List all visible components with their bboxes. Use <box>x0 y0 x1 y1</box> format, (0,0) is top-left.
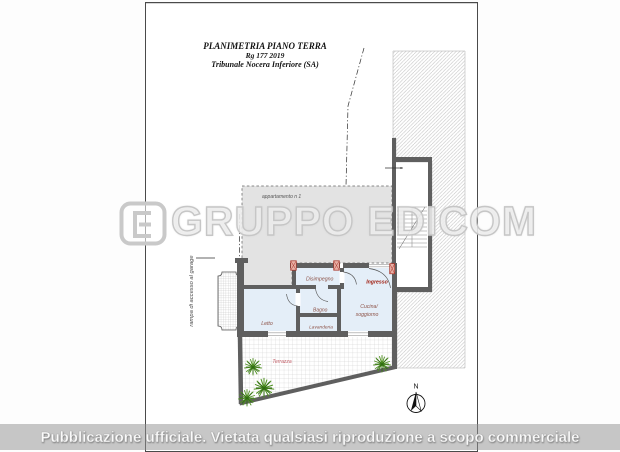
room-label-cucina-line1: Cucina/ <box>360 304 378 310</box>
ramp-structure <box>218 272 240 330</box>
title-block: PLANIMETRIA PIANO TERRA Rg 177 2019 Trib… <box>145 41 385 69</box>
room-label-terrazza: Terrazza <box>272 359 291 365</box>
terrace <box>240 337 397 405</box>
room-label-letto: Letto <box>261 321 273 327</box>
ramp-label: rampa di accesso al garage <box>189 255 195 327</box>
title-line-1: PLANIMETRIA PIANO TERRA <box>145 41 385 51</box>
staircase <box>397 207 427 249</box>
overhang-label: appartamento n 1 <box>262 194 301 200</box>
title-line-3: Tribunale Nocera Inferiore (SA) <box>145 60 385 69</box>
room-label-disimpegno: Disimpegno <box>306 277 334 283</box>
footer-banner: Pubblicazione ufficiale. Vietata qualsia… <box>0 424 620 450</box>
compass-north-label: N <box>413 384 418 391</box>
room-label-cucina-line2: soggiorno <box>356 312 379 318</box>
room-label-bagno: Bagno <box>313 308 328 314</box>
room-label-ingresso: Ingresso <box>366 280 388 286</box>
title-line-2: Rg 177 2019 <box>145 51 385 60</box>
room-label-lavanderia: Lavanderia <box>309 325 333 331</box>
footer-banner-text: Pubblicazione ufficiale. Vietata qualsia… <box>40 429 579 446</box>
north-arrow-icon: N <box>407 384 425 413</box>
